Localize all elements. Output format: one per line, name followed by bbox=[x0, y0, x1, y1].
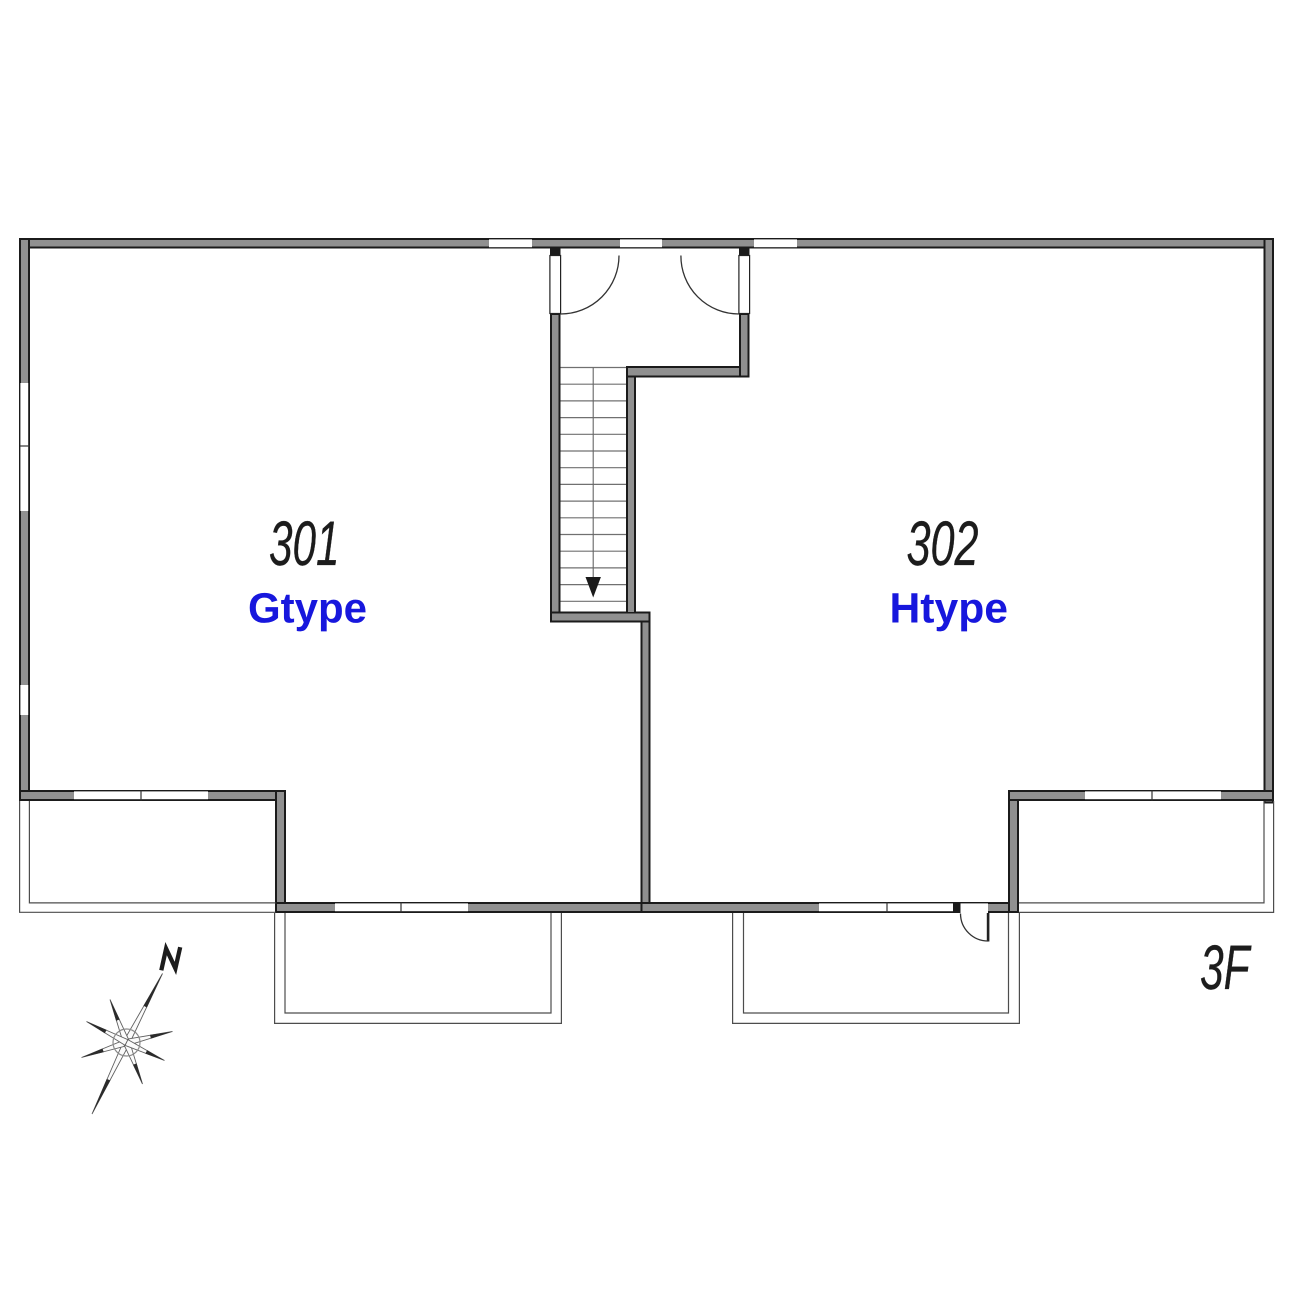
svg-text:Htype: Htype bbox=[889, 585, 1008, 632]
svg-text:301: 301 bbox=[269, 509, 340, 579]
svg-text:3F: 3F bbox=[1200, 933, 1252, 1003]
svg-text:302: 302 bbox=[906, 509, 978, 579]
svg-text:Gtype: Gtype bbox=[248, 585, 367, 632]
